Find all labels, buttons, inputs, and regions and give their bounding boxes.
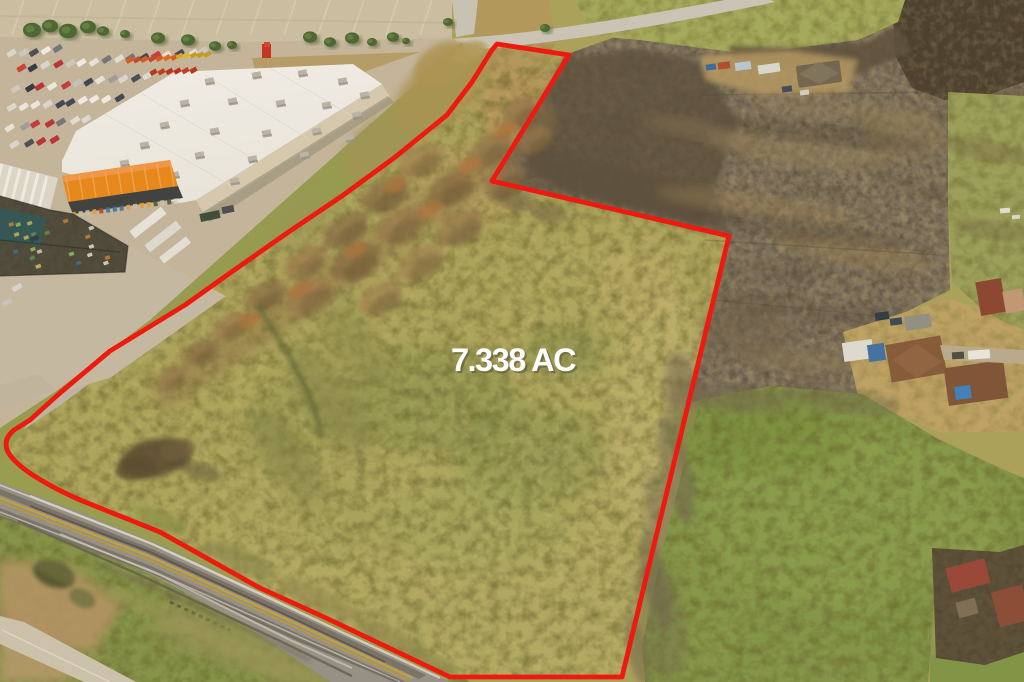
svg-text:7.338 AC: 7.338 AC — [451, 342, 576, 378]
